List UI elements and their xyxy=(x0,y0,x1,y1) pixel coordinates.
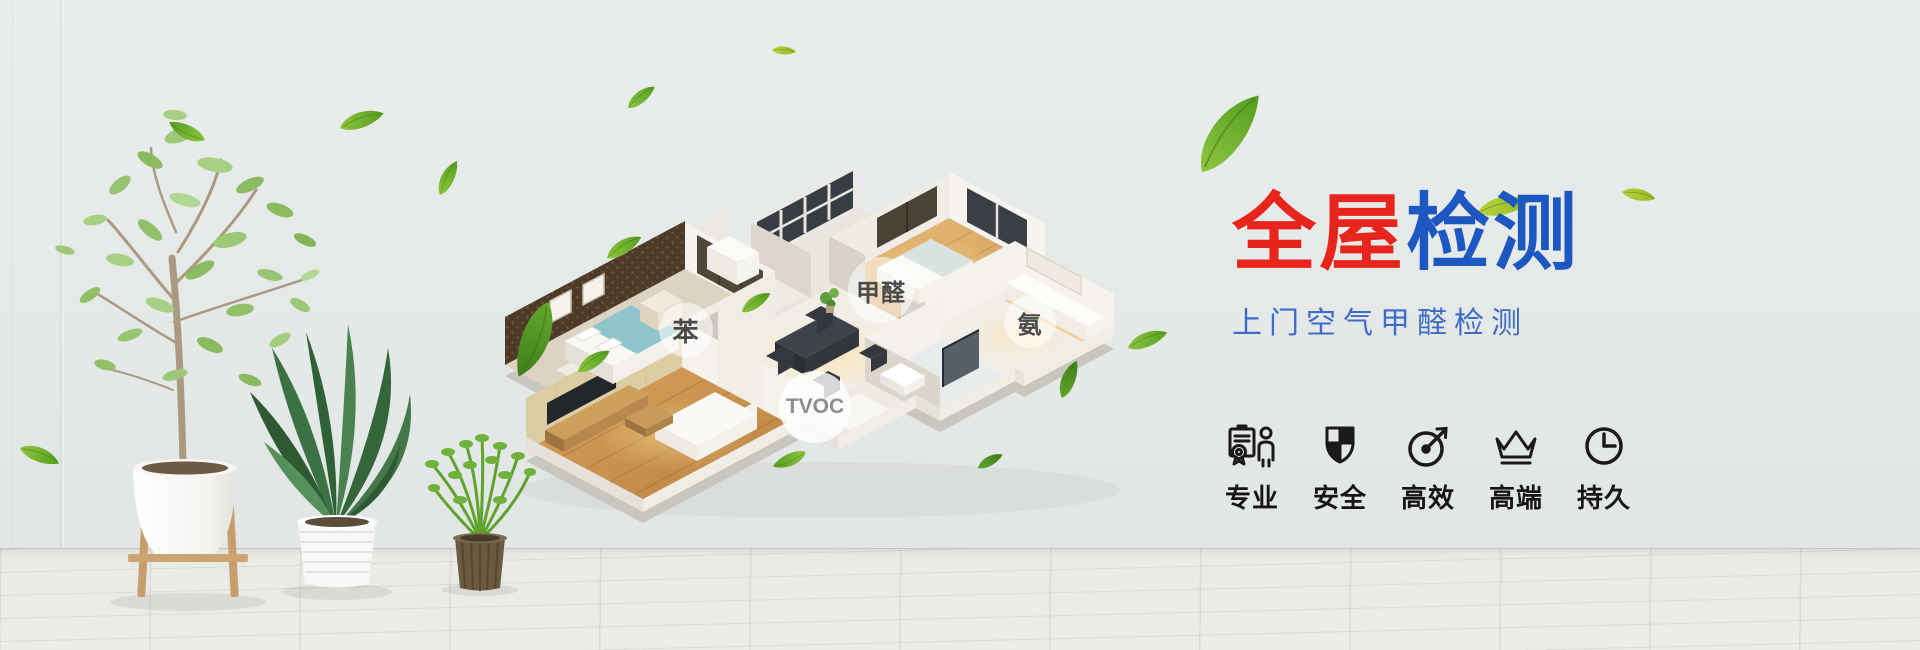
pollutant-label-benzene: 苯 xyxy=(659,303,713,357)
feature-highend: 高端 xyxy=(1488,420,1544,515)
title-part-blue: 检测 xyxy=(1406,186,1580,280)
pollutant-label-ammonia: 氨 xyxy=(1004,296,1056,348)
title-part-red: 全屋 xyxy=(1232,186,1406,280)
wall-panel-groove xyxy=(60,0,64,552)
feature-label: 高效 xyxy=(1401,478,1455,515)
gauge-arrow-icon xyxy=(1402,420,1454,472)
feature-safe: 安全 xyxy=(1312,420,1368,515)
floor-shadow xyxy=(0,548,1920,556)
pollutant-label-formaldehyde: 甲醛 xyxy=(848,257,914,323)
pollutant-label-tvoc: TVOC xyxy=(779,371,851,443)
feature-professional: 专业 xyxy=(1224,420,1280,515)
feature-label: 高端 xyxy=(1489,478,1543,515)
feature-efficient: 高效 xyxy=(1400,420,1456,515)
feature-list: 专业 安全 高效 xyxy=(1224,420,1664,515)
subtitle: 上门空气甲醛检测 xyxy=(1232,298,1580,342)
feature-label: 专业 xyxy=(1225,478,1279,515)
crown-icon xyxy=(1490,420,1542,472)
wall-panel-groove xyxy=(12,0,15,552)
hero-banner: 苯 甲醛 氨 TVOC 全屋检测 xyxy=(0,0,1920,650)
certificate-person-icon xyxy=(1226,420,1278,472)
clock-icon xyxy=(1578,420,1630,472)
wood-floor xyxy=(0,548,1920,650)
headline-block: 全屋检测 上门空气甲醛检测 xyxy=(1232,186,1580,342)
feature-lasting: 持久 xyxy=(1576,420,1632,515)
page-title: 全屋检测 xyxy=(1232,186,1580,280)
feature-label: 安全 xyxy=(1313,478,1367,515)
feature-label: 持久 xyxy=(1577,478,1631,515)
shield-check-icon xyxy=(1314,420,1366,472)
